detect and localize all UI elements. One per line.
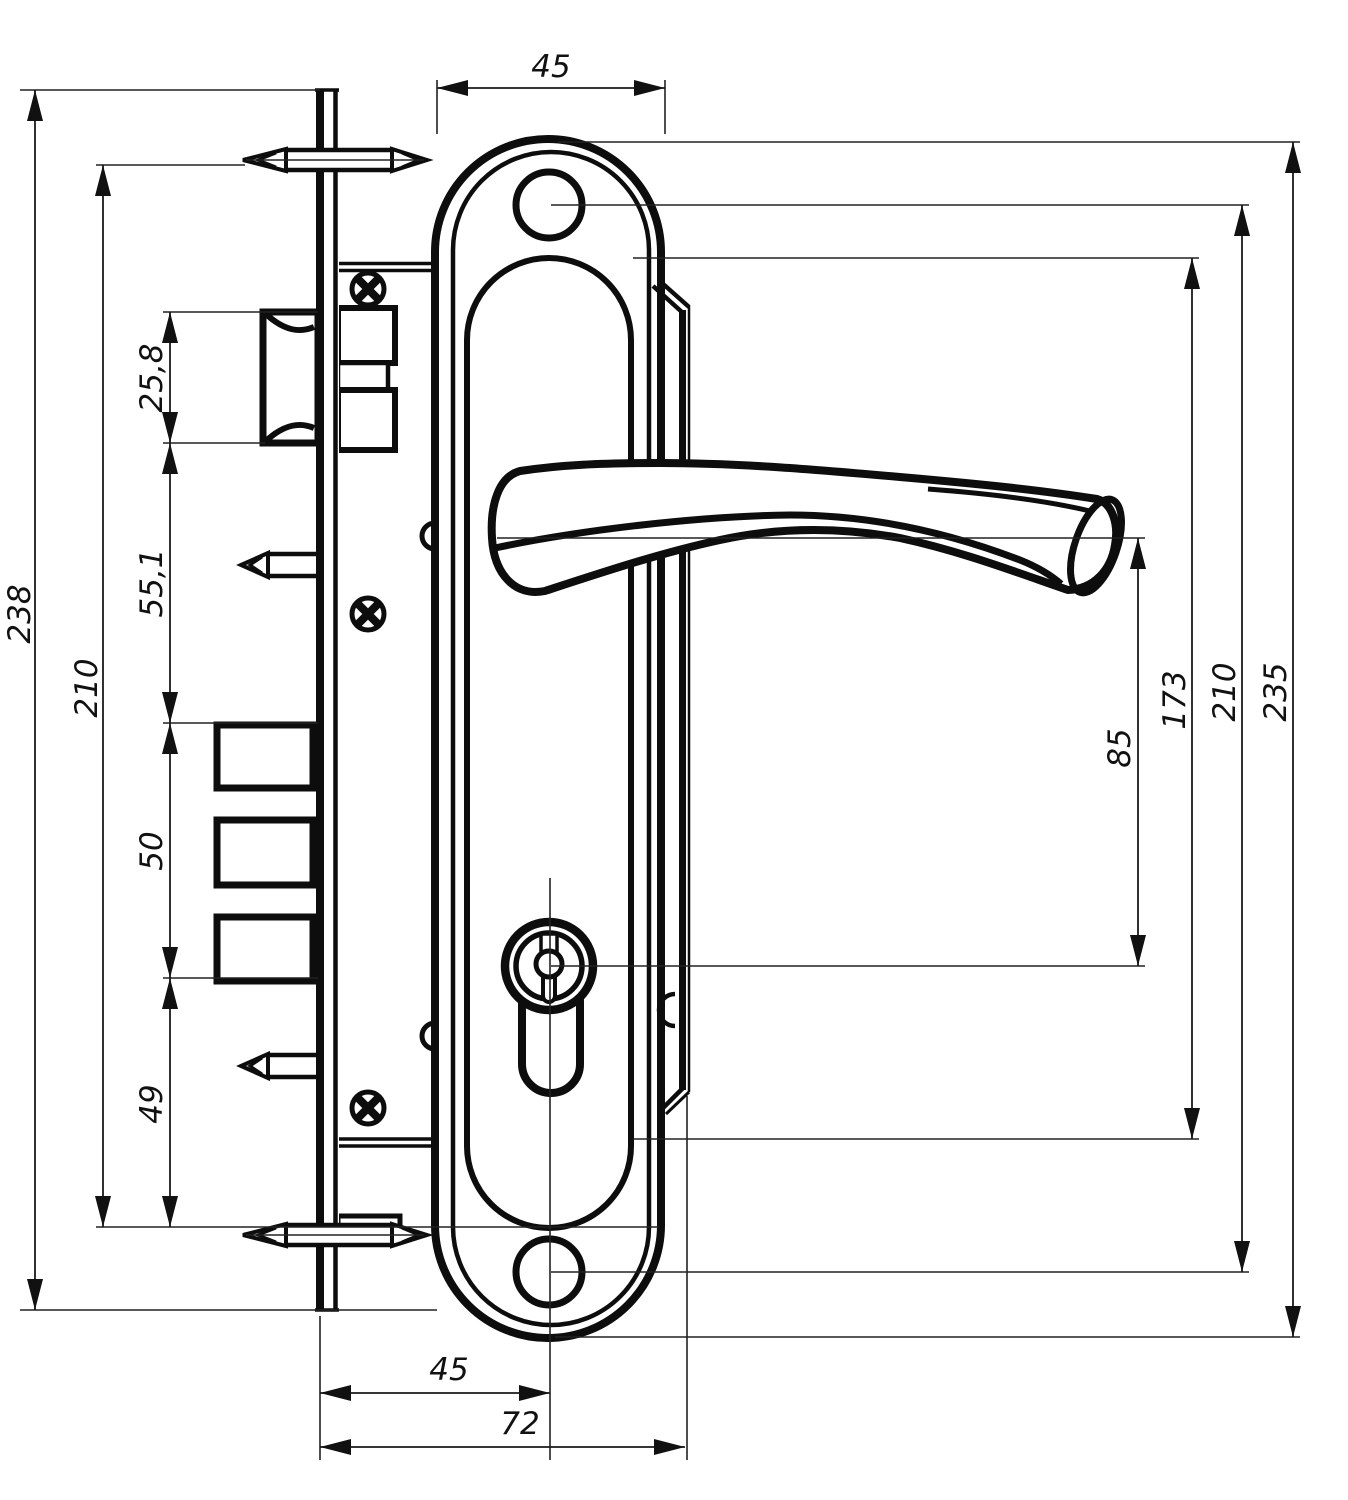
latch-guide-block [338,308,395,363]
dim-label-handle-to-cylinder: 85 [1102,728,1138,767]
deadbolt-pin [217,820,313,885]
dim-label-latch-to-deadbolt: 55,1 [134,548,170,617]
escutcheon-plate [435,139,661,1338]
key-cylinder [505,922,593,1093]
fixing-screw-middle [352,598,384,630]
deadbolt-pin [217,725,313,788]
fixing-screw-bottom [352,1092,384,1124]
dim-label-deadbolt-span: 50 [134,831,170,870]
dim-label-overall-depth: 72 [500,1406,539,1442]
dim-label-overall-height: 238 [2,584,38,643]
dim-label-plate-height: 235 [1258,662,1294,721]
faceplate [315,88,339,1312]
latch-guide-block [338,390,395,450]
fixing-screw-top [352,273,384,305]
dim-label-deadbolt-to-base: 49 [134,1084,170,1123]
lock-assembly-drawing: 45 238 210 25,8 55,1 [0,0,1348,1500]
dim-label-plate-width: 45 [531,49,570,85]
latch-bolt [263,312,318,443]
dim-label-case-height: 173 [1157,670,1193,729]
cylinder-pin [536,951,562,977]
dim-label-latch-height: 25,8 [134,343,170,412]
drawing-background [0,0,1348,1500]
deadbolt-group [217,725,313,981]
deadbolt-pin [217,917,313,981]
mounting-spike-top [243,149,427,171]
dim-label-mount-pin-span: 210 [69,658,105,717]
dim-label-backset: 45 [429,1352,468,1388]
latch-guide-block [338,363,388,390]
drawing-page: 45 238 210 25,8 55,1 [0,0,1348,1500]
dim-label-screw-hole-spacing: 210 [1207,662,1243,721]
